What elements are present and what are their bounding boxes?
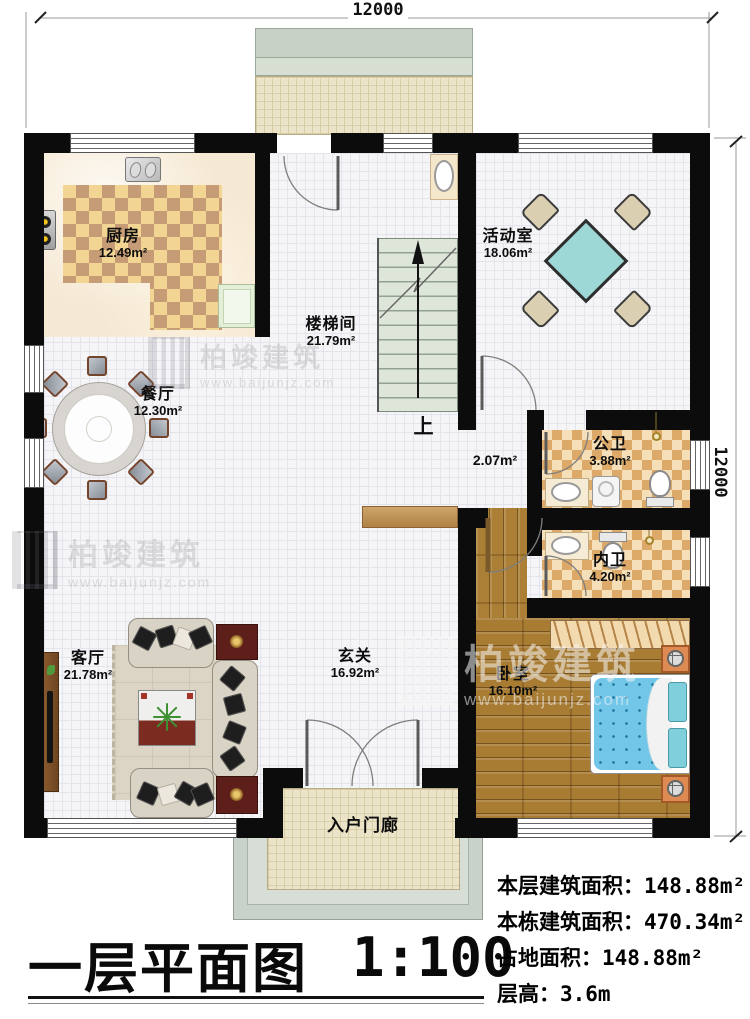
room-name: 玄关 <box>305 648 405 666</box>
stat-value: 148.88m² <box>602 946 703 970</box>
room-name: 客厅 <box>38 650 138 668</box>
stairs-direction: 上 <box>406 416 442 439</box>
stat-footprint: 占地面积： 148.88m² <box>497 942 747 978</box>
plan-scale-text: 1:100 <box>352 926 515 989</box>
room-area: 3.88m² <box>565 454 655 469</box>
room-name: 卧室 <box>468 666 558 684</box>
room-name: 入户门廊 <box>288 816 438 836</box>
room-name: 活动室 <box>455 228 561 246</box>
room-label-living: 客厅 21.78m² <box>38 650 138 683</box>
room-name: 餐厅 <box>108 386 208 404</box>
stat-storey-height: 层高： 3.6m <box>497 978 747 1014</box>
room-area: 12.49m² <box>68 246 178 261</box>
room-label-hallway: 2.07m² <box>450 452 540 468</box>
plan-title-text: 一层平面图 <box>28 939 308 999</box>
room-label-bedroom: 卧室 16.10m² <box>468 666 558 699</box>
room-name: 内卫 <box>565 552 655 570</box>
floor-plan: 12000 12000 厨房 12.49m² 楼梯间 21.79m² 活动室 1… <box>0 0 750 1019</box>
stat-value: 470.34m² <box>644 910 745 934</box>
room-area: 2.07m² <box>450 452 540 468</box>
room-label-dining: 餐厅 12.30m² <box>108 386 208 419</box>
stat-label: 层高： <box>497 978 560 1008</box>
stat-label: 占地面积： <box>497 942 602 972</box>
title-underline-thin <box>28 1003 484 1004</box>
room-label-kitchen: 厨房 12.49m² <box>68 228 178 261</box>
room-area: 16.92m² <box>305 666 405 681</box>
room-label-public-bath: 公卫 3.88m² <box>565 436 655 469</box>
dimension-right: 12000 <box>710 442 730 502</box>
stat-label: 本层建筑面积： <box>497 870 644 900</box>
annotation-overlay <box>0 0 750 1019</box>
room-label-stairwell: 楼梯间 21.79m² <box>276 316 386 349</box>
stat-label: 本栋建筑面积： <box>497 906 644 936</box>
room-name: 公卫 <box>565 436 655 454</box>
stat-value: 148.88m² <box>644 874 745 898</box>
dimension-top: 12000 <box>348 0 408 20</box>
room-area: 16.10m² <box>468 684 558 699</box>
room-label-foyer: 玄关 16.92m² <box>305 648 405 681</box>
room-label-activity: 活动室 18.06m² <box>455 228 561 261</box>
title-underline-thick <box>28 996 484 999</box>
room-area: 21.78m² <box>38 668 138 683</box>
stats-block: 本层建筑面积： 148.88m² 本栋建筑面积： 470.34m² 占地面积： … <box>497 870 747 1014</box>
stat-floor-area: 本层建筑面积： 148.88m² <box>497 870 747 906</box>
room-name: 楼梯间 <box>276 316 386 334</box>
room-area: 21.79m² <box>276 334 386 349</box>
room-label-private-bath: 内卫 4.20m² <box>565 552 655 585</box>
stairs-up-label: 上 <box>406 416 442 439</box>
stat-building-area: 本栋建筑面积： 470.34m² <box>497 906 747 942</box>
plan-title: 一层平面图 <box>28 924 308 1003</box>
room-area: 18.06m² <box>455 246 561 261</box>
room-area: 4.20m² <box>565 570 655 585</box>
room-label-porch: 入户门廊 <box>288 816 438 836</box>
room-name: 厨房 <box>68 228 178 246</box>
stat-value: 3.6m <box>560 982 611 1006</box>
room-area: 12.30m² <box>108 404 208 419</box>
plan-scale: 1:100 <box>352 926 515 989</box>
